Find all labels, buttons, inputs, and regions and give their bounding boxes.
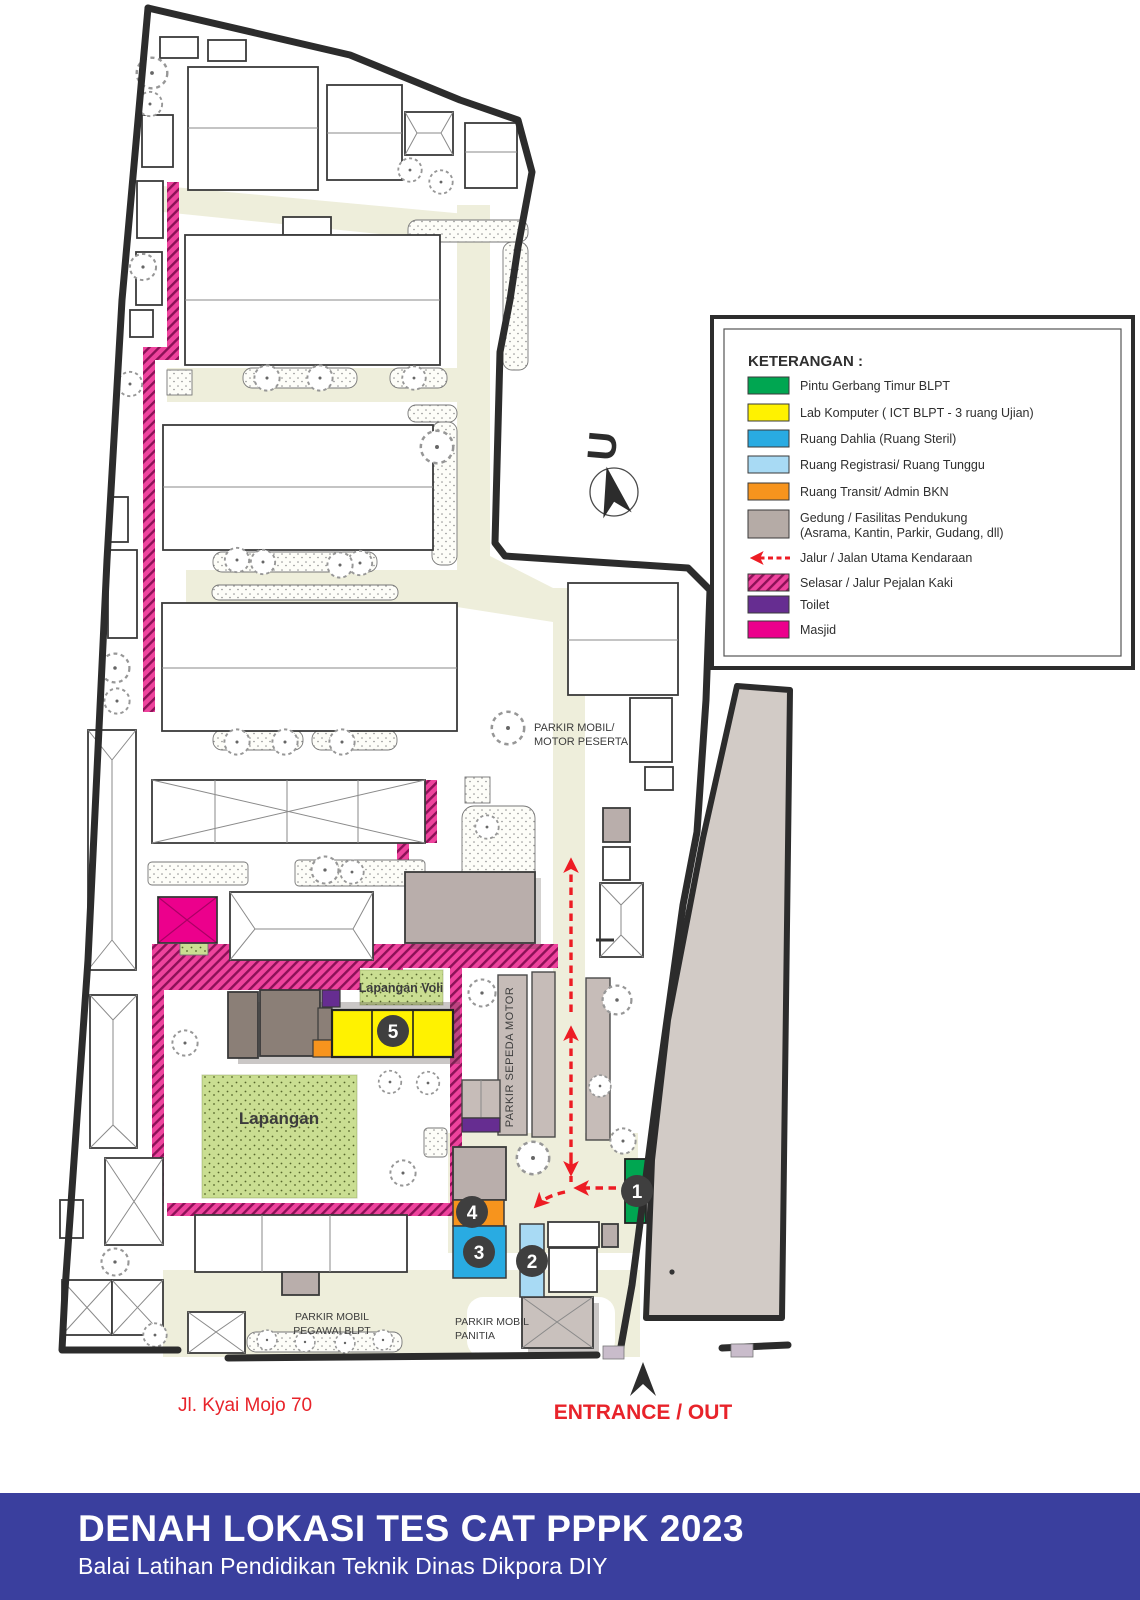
selasar-segment xyxy=(167,182,179,348)
road-connector xyxy=(457,556,553,622)
planting-strip xyxy=(167,370,192,395)
tree-icon xyxy=(589,1075,611,1097)
building xyxy=(548,1222,599,1247)
tree-icon xyxy=(475,815,498,838)
legend-swatch-masjid xyxy=(748,621,789,638)
building xyxy=(137,181,163,238)
legend-swatch-transit xyxy=(748,483,789,500)
building xyxy=(160,37,198,58)
building-gray xyxy=(453,1147,506,1200)
marker-number: 3 xyxy=(474,1243,485,1264)
marker-number: 5 xyxy=(388,1022,399,1043)
building xyxy=(283,217,331,235)
tree-icon xyxy=(492,712,524,744)
tree-icon xyxy=(251,550,275,574)
building xyxy=(549,1248,597,1292)
selasar-segment xyxy=(425,780,437,843)
transit-room-small xyxy=(313,1040,332,1057)
legend-swatch-selasar xyxy=(748,574,789,591)
planting-strip xyxy=(312,730,397,750)
north-indicator: U xyxy=(580,430,638,519)
legend-swatch-toilet xyxy=(748,596,789,613)
toilet-room xyxy=(462,1118,500,1132)
tree-icon xyxy=(104,688,129,713)
building-gray xyxy=(603,808,630,842)
tree-icon xyxy=(257,1330,277,1350)
building-gray xyxy=(282,1272,319,1295)
lapangan-voli-label: Lapangan Voli xyxy=(359,981,444,995)
tree-icon xyxy=(272,729,297,754)
legend-swatch-lab xyxy=(748,404,789,421)
building xyxy=(568,583,678,695)
building xyxy=(142,115,173,167)
building xyxy=(603,847,630,880)
legend-label: Jalur / Jalan Utama Kendaraan xyxy=(800,551,972,565)
toilet-room xyxy=(322,990,340,1007)
entrance-label: ENTRANCE / OUT xyxy=(554,1401,733,1424)
tree-icon xyxy=(118,372,142,396)
tree-icon xyxy=(340,860,363,883)
tree-icon xyxy=(398,158,421,181)
building xyxy=(108,550,137,638)
lapangan-field xyxy=(202,1075,357,1198)
entrance-arrow-icon xyxy=(630,1362,656,1396)
tree-icon xyxy=(143,1323,166,1346)
marker-5-lab: 5 xyxy=(377,1015,409,1047)
page-subtitle: Balai Latihan Pendidikan Teknik Dinas Di… xyxy=(78,1553,1140,1580)
tree-icon xyxy=(429,170,452,193)
building xyxy=(318,1008,332,1040)
tree-icon xyxy=(102,1249,129,1276)
planting-strip xyxy=(212,585,398,600)
marker-2-registrasi: 2 xyxy=(516,1245,548,1277)
gate-post xyxy=(731,1344,753,1357)
tree-icon xyxy=(172,1030,197,1055)
building xyxy=(260,990,320,1056)
marker-3-dahlia: 3 xyxy=(463,1236,495,1268)
north-letter: U xyxy=(580,430,626,463)
marker-number: 4 xyxy=(467,1203,478,1224)
tree-icon xyxy=(610,1128,635,1153)
tree-icon xyxy=(517,1142,549,1174)
parkir-pegawai-label: PEGAWAI BLPT xyxy=(293,1325,371,1337)
tree-icon xyxy=(225,548,249,572)
legend-label: Lab Komputer ( ICT BLPT - 3 ruang Ujian) xyxy=(800,406,1034,420)
legend-swatch-dahlia xyxy=(748,430,789,447)
planting-strip xyxy=(148,862,248,885)
legend-label: Selasar / Jalur Pejalan Kaki xyxy=(800,576,953,590)
legend-label: Gedung / Fasilitas Pendukung xyxy=(800,511,968,525)
legend-label: Masjid xyxy=(800,623,836,637)
title-banner: DENAH LOKASI TES CAT PPPK 2023 Balai Lat… xyxy=(0,1493,1140,1600)
building-gray xyxy=(602,1224,618,1247)
selasar-segment xyxy=(167,1203,455,1216)
tree-icon xyxy=(390,1160,415,1185)
building xyxy=(130,310,153,337)
parkir-pegawai-label: PARKIR MOBIL xyxy=(295,1311,369,1323)
parkir-sepeda-label: PARKIR SEPEDA MOTOR xyxy=(504,987,516,1128)
tree-icon xyxy=(327,552,352,577)
tree-icon xyxy=(469,980,496,1007)
road-vertical-upper xyxy=(457,205,490,590)
legend-swatch-registrasi xyxy=(748,456,789,473)
boundary-bottom xyxy=(228,1355,597,1358)
legend-label: Toilet xyxy=(800,598,830,612)
tree-icon xyxy=(312,857,339,884)
tree-icon xyxy=(402,366,425,389)
parkir-panitia-label: PARKIR MOBIL xyxy=(455,1316,529,1328)
tree-icon xyxy=(373,1330,393,1350)
page-title: DENAH LOKASI TES CAT PPPK 2023 xyxy=(78,1507,1140,1551)
legend-label: Ruang Dahlia (Ruang Steril) xyxy=(800,432,956,446)
tree-icon xyxy=(421,431,453,463)
planting-strip xyxy=(408,405,457,422)
legend-label: Pintu Gerbang Timur BLPT xyxy=(800,379,950,393)
tree-icon xyxy=(417,1072,440,1095)
street-dot xyxy=(669,1269,674,1274)
building xyxy=(228,992,258,1058)
tree-icon xyxy=(307,365,332,390)
legend-label: (Asrama, Kantin, Parkir, Gudang, dll) xyxy=(800,526,1004,540)
tree-icon xyxy=(224,729,249,754)
legend-label: Ruang Registrasi/ Ruang Tunggu xyxy=(800,458,985,472)
marker-1-gate: 1 xyxy=(621,1175,653,1207)
street-name-label: Jl. Kyai Mojo 70 xyxy=(178,1395,312,1416)
tree-icon xyxy=(329,729,354,754)
building xyxy=(645,767,673,790)
legend-swatch-gate xyxy=(748,377,789,394)
tree-icon xyxy=(379,1071,402,1094)
parkir-panitia-label: PANITIA xyxy=(455,1330,495,1342)
parkir-peserta-label: MOTOR PESERTA xyxy=(534,736,629,748)
parkir-peserta-label: PARKIR MOBIL/ xyxy=(534,722,615,734)
site-plan-page: PARKIR MOBIL/ MOTOR PESERTA PARKIR SEPED… xyxy=(0,0,1140,1600)
legend-title: KETERANGAN : xyxy=(748,353,863,370)
tree-icon xyxy=(254,365,279,390)
planting-strip xyxy=(465,777,490,803)
gate-post xyxy=(603,1346,624,1359)
marker-number: 1 xyxy=(632,1182,643,1203)
tree-icon xyxy=(130,254,156,280)
tree-icon xyxy=(603,986,632,1015)
selasar-segment xyxy=(143,352,155,712)
planting-strip xyxy=(424,1128,447,1157)
building xyxy=(630,698,672,762)
lapangan-label: Lapangan xyxy=(239,1109,319,1128)
legend-box: KETERANGAN : Pintu Gerbang Timur BLPT La… xyxy=(712,317,1133,668)
building xyxy=(465,123,517,188)
legend-label: Ruang Transit/ Admin BKN xyxy=(800,485,949,499)
legend-swatch-gedung xyxy=(748,510,789,538)
building xyxy=(195,1215,407,1272)
building xyxy=(208,40,246,61)
site-plan-map: PARKIR MOBIL/ MOTOR PESERTA PARKIR SEPED… xyxy=(0,0,1140,1493)
marker-4-transit: 4 xyxy=(456,1196,488,1228)
parkir-sepeda-strip xyxy=(532,972,555,1137)
building-gray xyxy=(405,872,535,943)
building xyxy=(230,892,373,960)
marker-number: 2 xyxy=(527,1252,538,1273)
building xyxy=(162,603,457,731)
